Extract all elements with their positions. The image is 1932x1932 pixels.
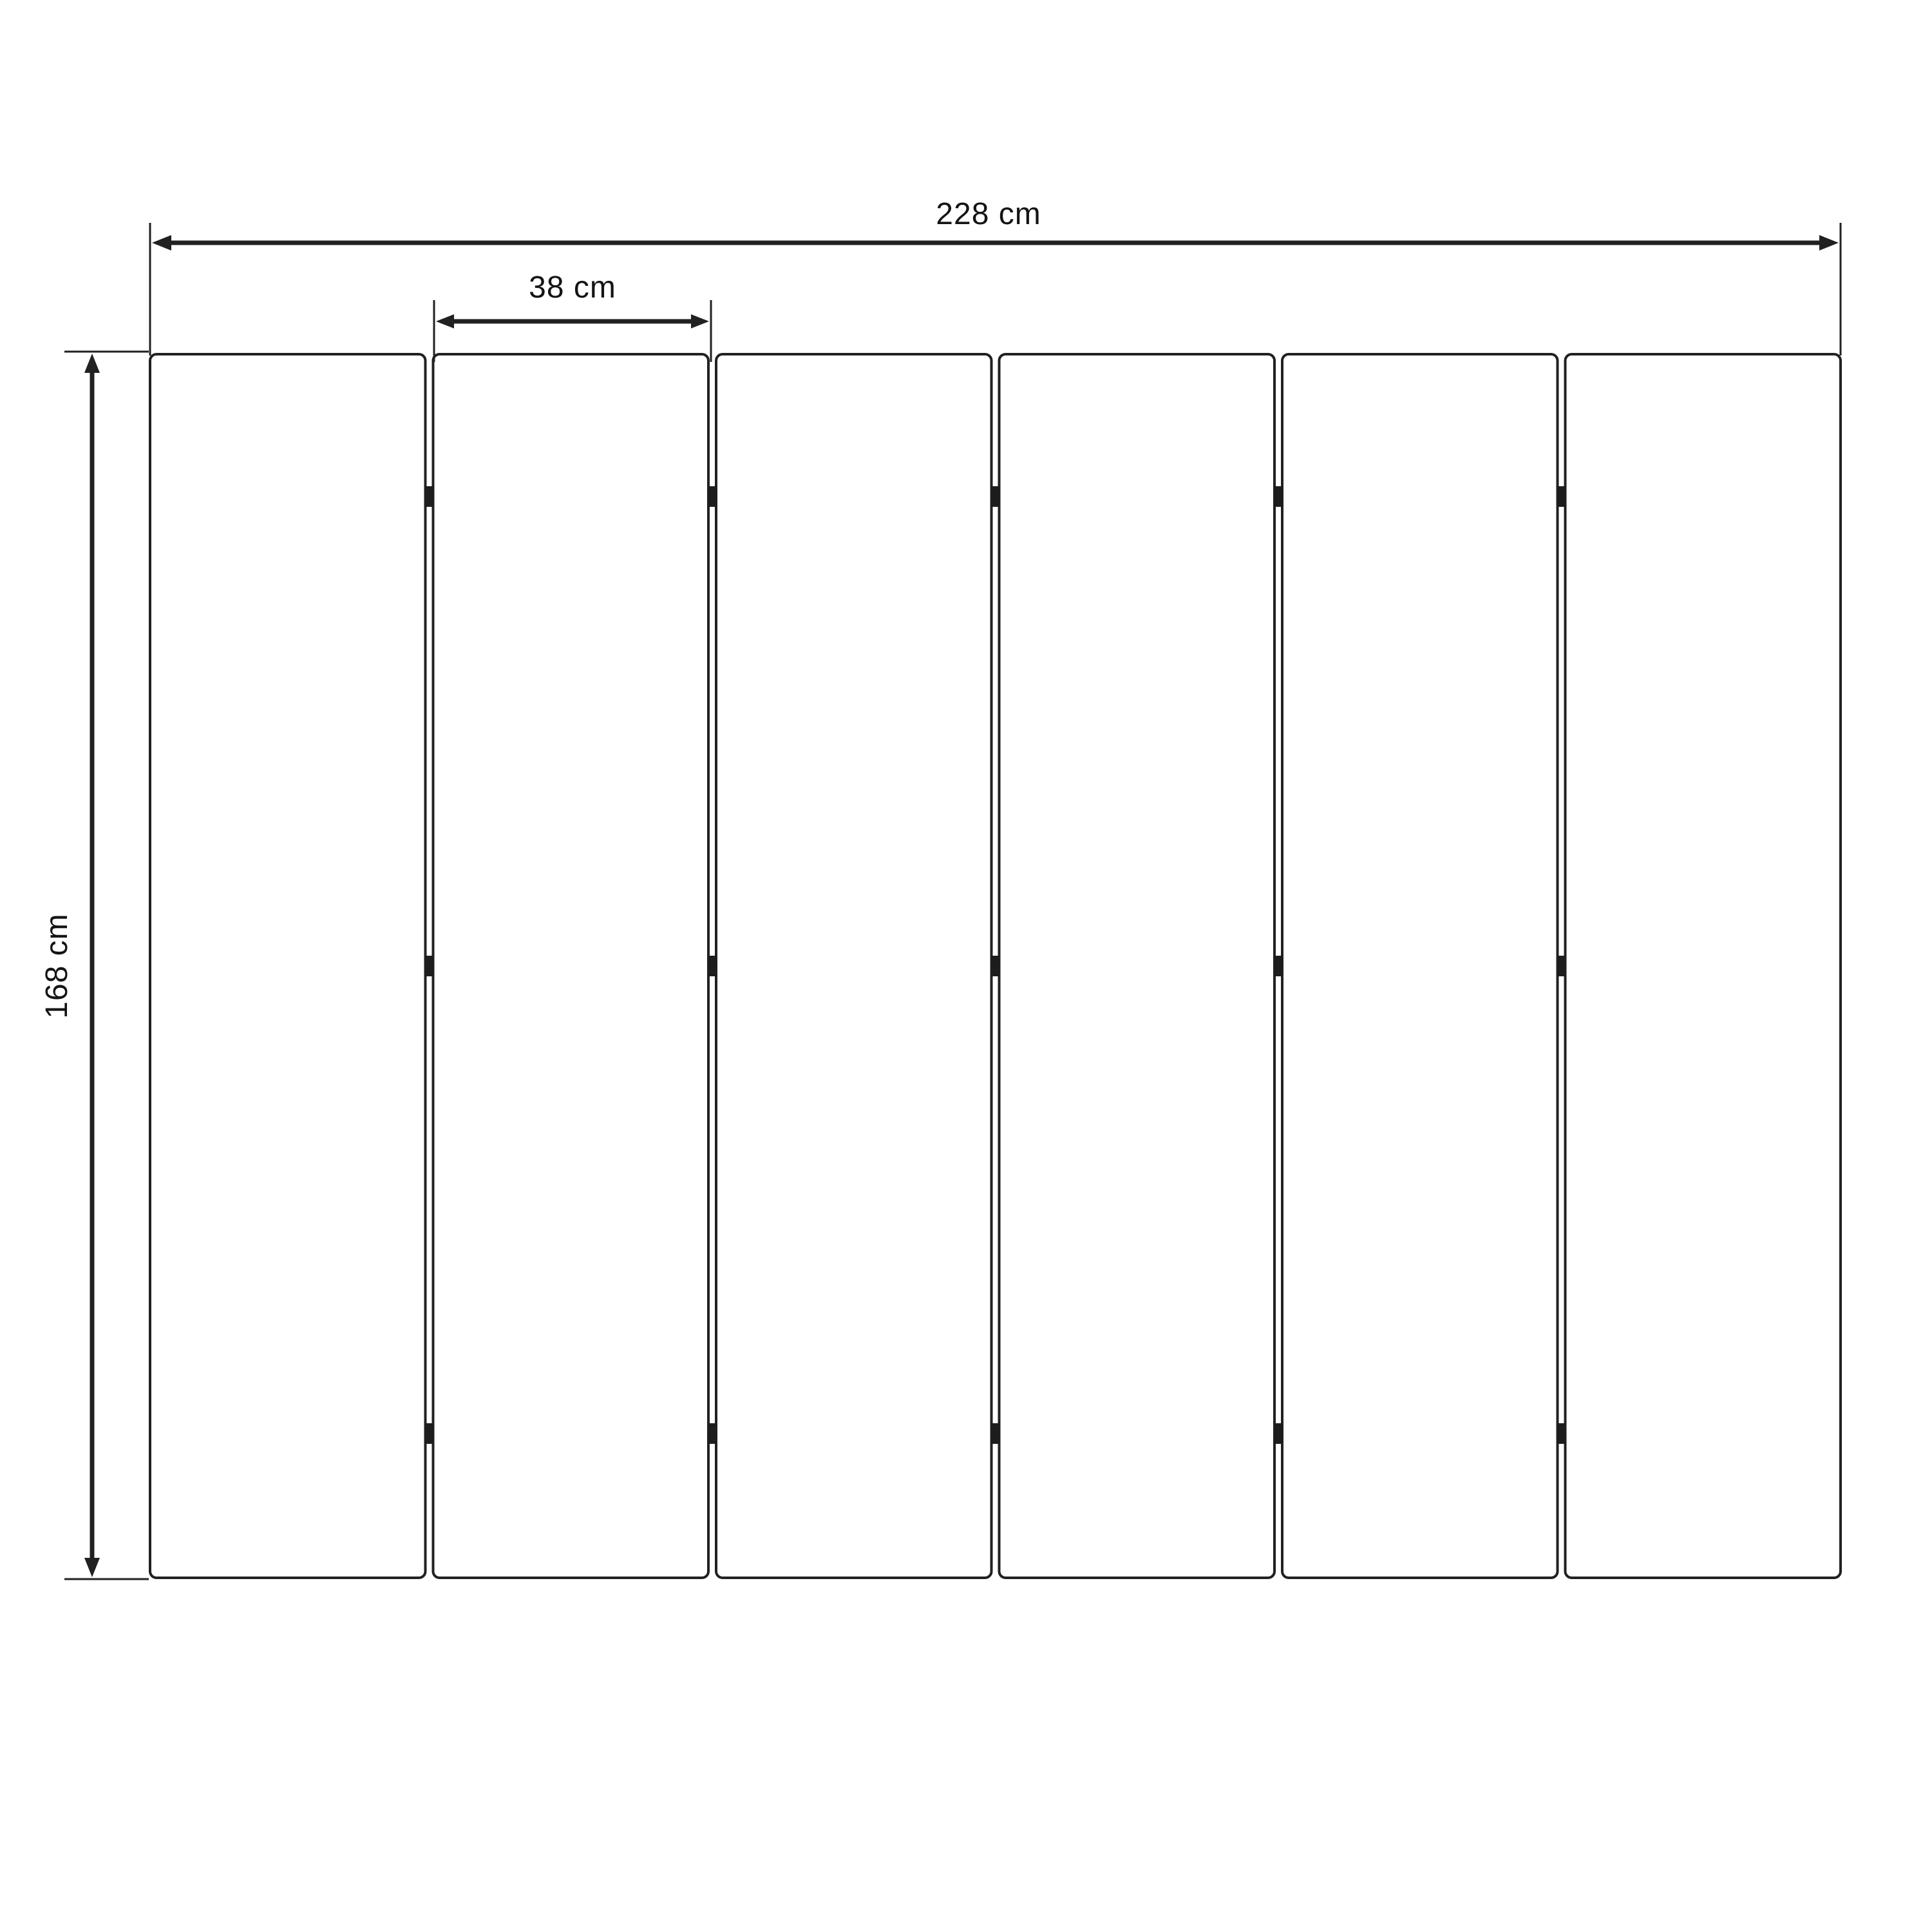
blueprint-canvas: 228 cm 38 cm 168 cm xyxy=(0,0,1932,1932)
panel-3 xyxy=(716,354,992,1578)
panel-5 xyxy=(1282,354,1558,1578)
dimension-panel-width: 38 cm xyxy=(434,270,711,362)
arrowhead-right-icon xyxy=(1819,235,1839,251)
hinge-mark xyxy=(991,956,1000,976)
arrowhead-left-icon xyxy=(436,314,454,328)
hinge-mark xyxy=(708,486,717,507)
hinge-mark xyxy=(1274,956,1283,976)
panel-6 xyxy=(1566,354,1841,1578)
hinge-mark xyxy=(991,486,1000,507)
arrowhead-right-icon xyxy=(691,314,709,328)
hinge-mark xyxy=(708,1423,717,1444)
hinge-mark xyxy=(1557,1423,1566,1444)
dimension-label-panel-width: 38 cm xyxy=(529,270,616,305)
hinge-mark xyxy=(991,1423,1000,1444)
arrowhead-up-icon xyxy=(84,354,100,373)
hinge-mark xyxy=(708,956,717,976)
dimension-total-width: 228 cm xyxy=(150,197,1841,355)
arrowhead-left-icon xyxy=(152,235,171,251)
hinge-mark xyxy=(425,956,434,976)
arrowhead-down-icon xyxy=(84,1558,100,1577)
hinge-mark xyxy=(425,1423,434,1444)
dimension-height: 168 cm xyxy=(40,352,149,1579)
hinge-mark xyxy=(425,486,434,507)
hinge-mark xyxy=(1274,486,1283,507)
panel-2 xyxy=(433,354,709,1578)
dimension-label-height: 168 cm xyxy=(40,913,74,1018)
hinge-mark xyxy=(1274,1423,1283,1444)
folding-screen-drawing: 228 cm 38 cm 168 cm xyxy=(0,0,1932,1932)
panel-4 xyxy=(999,354,1275,1578)
panel-1 xyxy=(150,354,426,1578)
hinge-mark xyxy=(1557,486,1566,507)
dimension-label-total-width: 228 cm xyxy=(936,197,1041,231)
hinge-mark xyxy=(1557,956,1566,976)
